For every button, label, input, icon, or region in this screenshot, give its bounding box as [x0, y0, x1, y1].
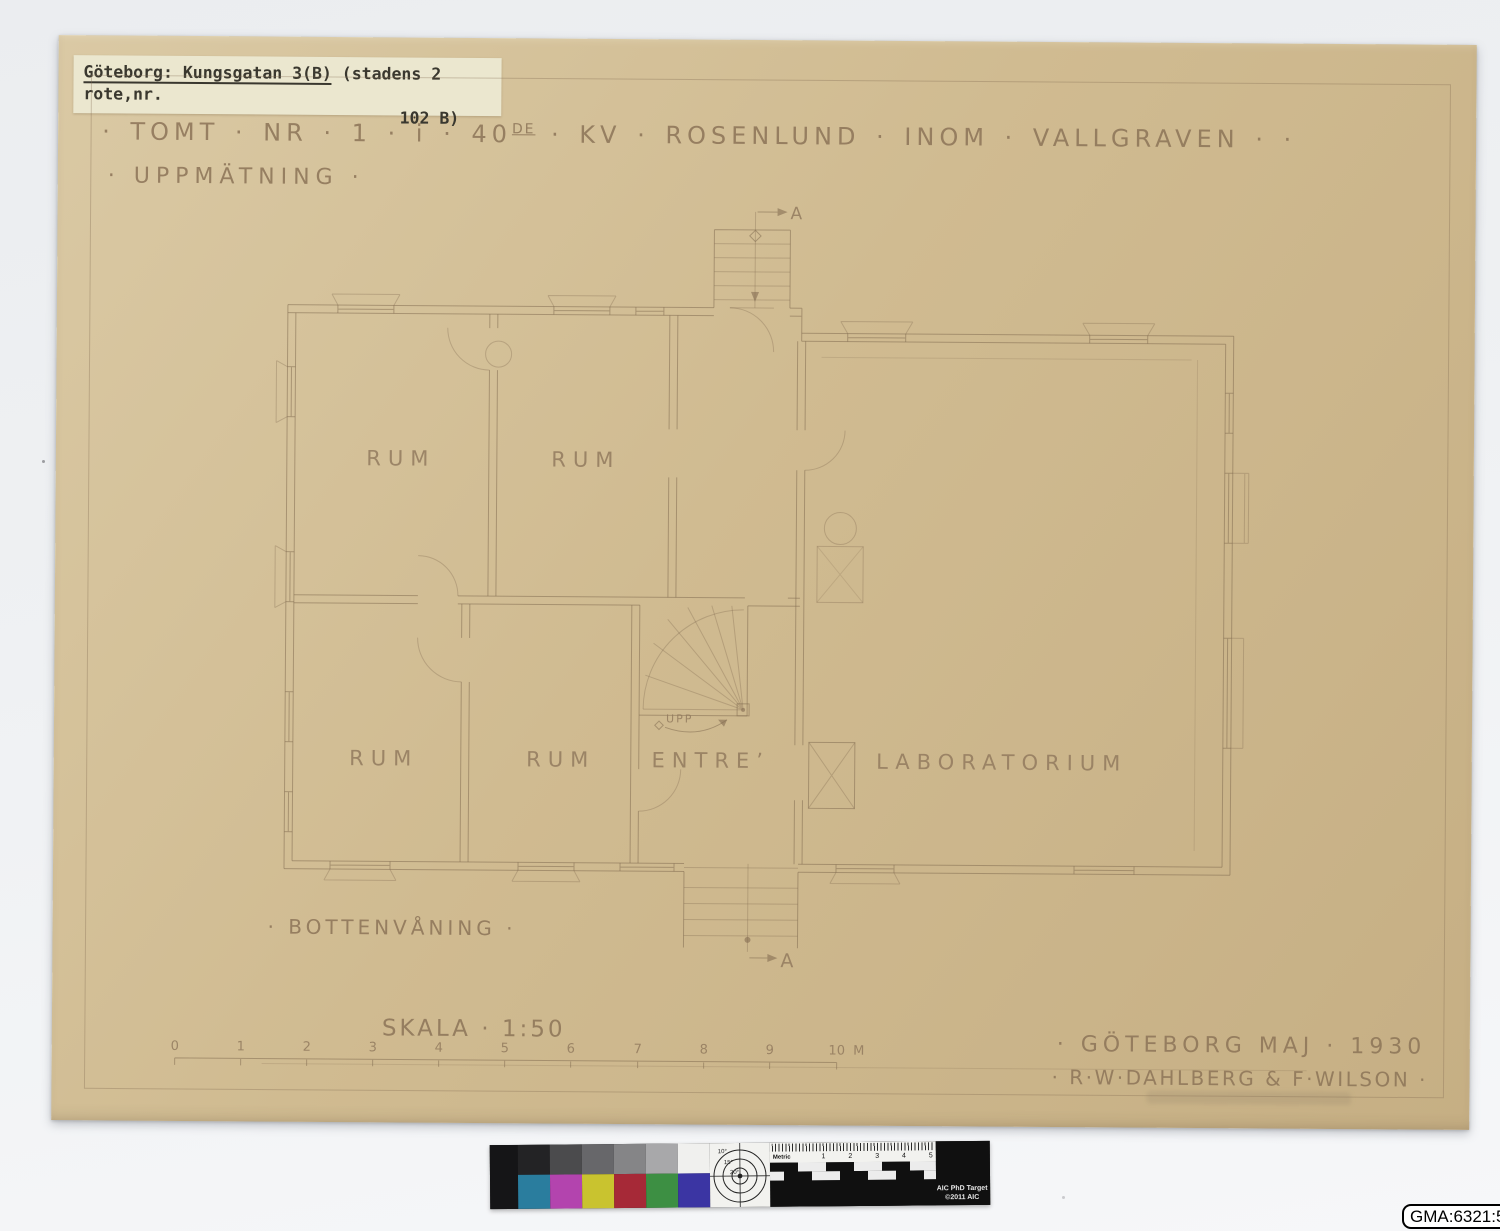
svg-text:7: 7	[634, 1042, 642, 1057]
stair-direction-label: UPP	[666, 712, 693, 725]
color-calibration-target: 10° 15° 20° Metric 1 2 3 4 5	[490, 1141, 991, 1209]
svg-text:1: 1	[237, 1039, 245, 1054]
gray-patch	[518, 1145, 550, 1175]
fixtures	[808, 357, 1197, 851]
catalog-number-sticker: GMA:6321:5	[1402, 1204, 1500, 1229]
scale-bar-numbers: 0 1 2 3 4 5 6 7 8 9 10 M	[171, 1039, 865, 1059]
svg-text:4: 4	[435, 1041, 443, 1056]
target-brand-block: AIC PhD Target ©2011 AIC	[936, 1141, 991, 1205]
winder-staircase: UPP	[639, 605, 750, 732]
dust-speck	[1062, 1196, 1065, 1199]
svg-text:10: 10	[828, 1043, 845, 1058]
top-entrance-stairs	[714, 230, 791, 309]
room-label-rum2: RUM	[551, 448, 620, 472]
ruler-scale: Metric 1 2 3 4 5	[770, 1141, 936, 1162]
svg-text:8: 8	[700, 1043, 708, 1058]
svg-text:3: 3	[369, 1040, 377, 1055]
color-patch	[582, 1174, 614, 1208]
target-patch-grid	[518, 1143, 711, 1209]
target-focus-rings: 10° 15° 20°	[710, 1143, 771, 1208]
svg-text:15°: 15°	[724, 1160, 734, 1166]
svg-text:0: 0	[171, 1039, 179, 1054]
svg-text:9: 9	[766, 1043, 774, 1058]
windows	[273, 294, 1250, 887]
gray-patch	[646, 1144, 678, 1174]
focus-rings-graphic: 10° 15° 20°	[710, 1143, 771, 1208]
interior-walls	[292, 313, 806, 865]
room-labels: RUM RUM RUM RUM ENTRE’ LABORATORIUM	[349, 446, 1129, 775]
target-ruler: Metric 1 2 3 4 5	[770, 1141, 937, 1206]
photograph-of-drawing: Göteborg: Kungsgatan 3(B) (stadens 2 rot…	[0, 0, 1500, 1231]
room-label-rum1: RUM	[366, 446, 435, 470]
drawing-sheet: Göteborg: Kungsgatan 3(B) (stadens 2 rot…	[51, 35, 1477, 1130]
gray-patch	[614, 1144, 646, 1174]
svg-text:10°: 10°	[718, 1149, 728, 1155]
section-marker-top: A	[791, 204, 803, 224]
target-black-patch	[490, 1145, 519, 1209]
bottom-entrance-stairs	[683, 867, 798, 948]
scale-unit: M	[853, 1044, 864, 1059]
color-patch	[614, 1174, 646, 1208]
color-patch	[550, 1174, 582, 1208]
target-brand-text: AIC PhD Target ©2011 AIC	[935, 1184, 989, 1202]
gray-patch	[678, 1143, 710, 1173]
svg-text:5: 5	[501, 1041, 509, 1056]
dust-speck	[42, 460, 45, 463]
room-label-entre: ENTRE’	[652, 748, 771, 773]
catalog-number: GMA:6321:5	[1410, 1207, 1500, 1227]
floor-plan-drawing: UPP A A	[51, 35, 1477, 1130]
ruler-unit-label: Metric	[773, 1154, 791, 1160]
color-patch	[518, 1175, 550, 1209]
outer-walls	[284, 305, 1234, 876]
gray-patch	[582, 1144, 614, 1174]
color-patch	[646, 1174, 678, 1208]
section-marker-bottom: A	[780, 950, 793, 972]
gray-patch	[550, 1144, 582, 1174]
svg-text:20°: 20°	[730, 1170, 740, 1176]
room-label-rum4: RUM	[526, 747, 595, 771]
room-label-laboratorium: LABORATORIUM	[876, 750, 1127, 776]
svg-text:6: 6	[567, 1042, 575, 1057]
color-patch	[678, 1173, 710, 1207]
sheet-border	[84, 75, 1450, 1097]
room-label-rum3: RUM	[349, 746, 418, 770]
svg-text:2: 2	[303, 1040, 311, 1055]
